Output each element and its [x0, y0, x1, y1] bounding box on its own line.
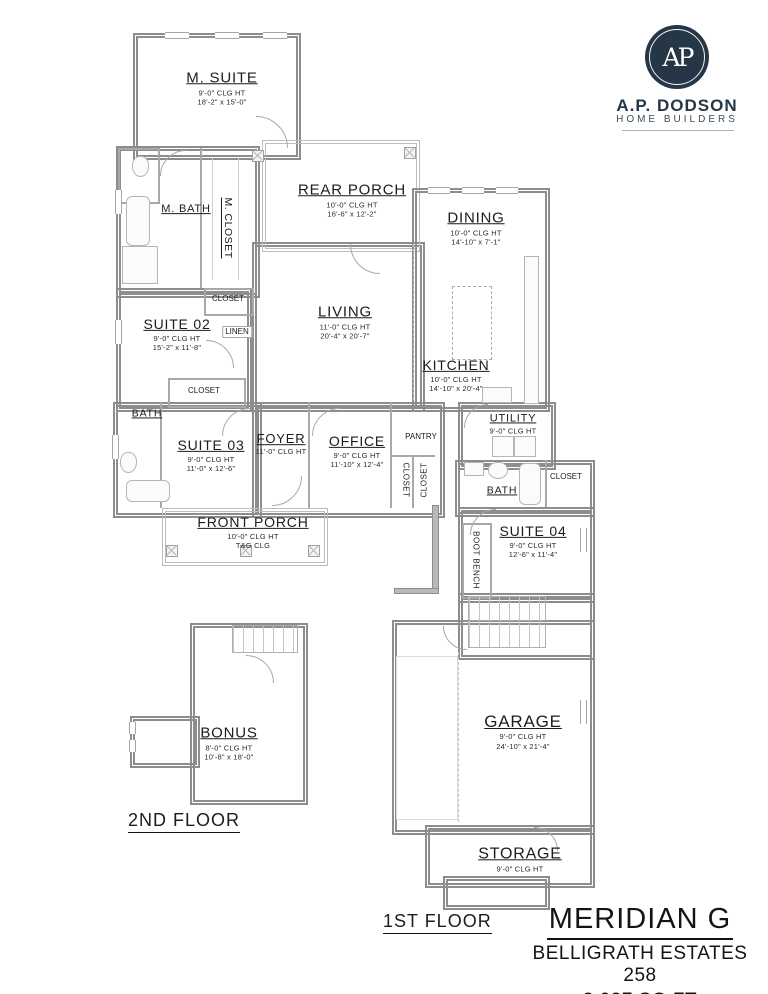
- room-name: STORAGE: [478, 844, 562, 864]
- room-name: SUITE 04: [499, 523, 566, 541]
- sink-symbol: [464, 462, 484, 476]
- wall-entry-side: [432, 505, 439, 594]
- porch-post: [166, 545, 178, 557]
- room-name: LINEN: [222, 326, 252, 338]
- wall-bath-closet04: [545, 460, 547, 507]
- title-block: MERIDIAN G BELLIGRATH ESTATES 258 3,037 …: [520, 903, 760, 994]
- brand-name: A.P. DODSON: [597, 96, 757, 116]
- kitchen-counter: [524, 256, 539, 404]
- brand-divider: [622, 130, 734, 131]
- porch-post: [308, 545, 320, 557]
- room-name: FOYER: [256, 431, 307, 447]
- room-name: GARAGE: [484, 711, 562, 732]
- room-name: KITCHEN: [422, 357, 489, 375]
- door-arc: [464, 404, 488, 428]
- room-label-kitchen: KITCHEN 10'-0" CLG HT 14'-10" x 20'-4": [422, 357, 489, 393]
- toilet-symbol: [132, 156, 149, 177]
- window: [580, 528, 587, 552]
- door-arc: [443, 626, 467, 650]
- door-arc: [222, 408, 250, 436]
- floor-plan-sheet: M. SUITE 9'-0" CLG HT 18'-2" x 15'-0" RE…: [0, 0, 768, 994]
- closet-rod: [238, 158, 239, 280]
- room-label-storage: STORAGE 9'-0" CLG HT: [478, 844, 562, 873]
- room-label-dining: DINING 10'-0" CLG HT 14'-10" x 7'-1": [447, 209, 504, 247]
- room-label-utility: UTILITY 9'-0" CLG HT: [490, 412, 537, 435]
- stairs: [468, 596, 546, 648]
- room-name: BATH: [132, 407, 162, 420]
- room-name: M. SUITE: [186, 69, 257, 88]
- room-label-foyer: FOYER 11'-0" CLG HT: [256, 431, 307, 457]
- room-name: BONUS: [200, 724, 257, 743]
- room-name: FRONT PORCH: [197, 514, 308, 532]
- community-name: BELLIGRATH ESTATES 258: [520, 943, 760, 987]
- door-arc: [256, 116, 288, 148]
- ceiling-break-line: [413, 244, 414, 400]
- room-label-office: OFFICE 9'-0" CLG HT 11'-10" x 12'-4": [329, 433, 385, 469]
- window: [215, 32, 239, 39]
- wall-foyer-office-div: [308, 402, 310, 508]
- window: [115, 190, 122, 214]
- kitchen-island: [452, 286, 492, 360]
- second-floor-label: 2ND FLOOR: [128, 810, 240, 833]
- room-name: CLOSET: [212, 294, 244, 304]
- room-name: DINING: [447, 209, 504, 228]
- bathtub-symbol: [519, 463, 541, 505]
- window: [580, 700, 587, 724]
- ap-dodson-logo-icon: AP: [645, 25, 709, 89]
- room-label-suite03: SUITE 03 9'-0" CLG HT 11'-0" x 12'-6": [177, 437, 244, 473]
- door-arc: [312, 408, 340, 436]
- room-name: CLOSET: [550, 472, 582, 482]
- room-label-linen: LINEN: [222, 326, 252, 338]
- door-arc: [272, 476, 302, 506]
- room-label-pantry: PANTRY: [405, 432, 437, 442]
- window: [496, 187, 518, 194]
- room-label-m-suite: M. SUITE 9'-0" CLG HT 18'-2" x 15'-0": [186, 69, 257, 107]
- room-label-closet-suite03: CLOSET: [188, 386, 220, 396]
- bathtub-symbol: [126, 196, 150, 246]
- toilet-symbol: [488, 462, 508, 479]
- brand-tagline: HOME BUILDERS: [597, 114, 757, 125]
- room-label-m-bath: M. BATH: [161, 203, 210, 217]
- room-name: UTILITY: [490, 412, 537, 426]
- room-name: SUITE 03: [177, 437, 244, 455]
- room-label-closet-foyer-a: CLOSET: [402, 462, 411, 497]
- room-name: REAR PORCH: [298, 181, 406, 200]
- room-name: SUITE 02: [143, 316, 210, 334]
- closet-rod: [212, 158, 213, 280]
- logo-monogram: AP: [645, 25, 709, 89]
- wall-entry-jog: [394, 588, 439, 594]
- room-label-closet-suite04: CLOSET: [550, 472, 582, 482]
- window: [112, 435, 119, 459]
- porch-post: [252, 150, 264, 162]
- washer-symbol: [492, 436, 514, 457]
- garage-bay-line: [458, 652, 459, 822]
- first-floor-label: 1ST FLOOR: [383, 911, 492, 934]
- room-label-garage: GARAGE 9'-0" CLG HT 24'-10" x 21'-4": [484, 711, 562, 751]
- room-name: M. BATH: [161, 203, 210, 217]
- bonus-stairs: [232, 625, 298, 653]
- window: [115, 320, 122, 344]
- room-label-m-closet: M. CLOSET: [222, 197, 234, 258]
- room-name: PANTRY: [405, 432, 437, 442]
- door-arc: [350, 244, 380, 274]
- porch-post: [404, 147, 416, 159]
- room-name: LIVING: [318, 303, 372, 322]
- room-label-front-porch: FRONT PORCH 10'-0" CLG HT T&G CLG: [197, 514, 308, 550]
- room-label-closet-foyer-b: CLOSET: [420, 462, 429, 497]
- shower-symbol: [122, 246, 158, 284]
- window: [428, 187, 450, 194]
- window: [165, 32, 189, 39]
- window: [129, 722, 136, 734]
- room-label-living: LIVING 11'-0" CLG HT 20'-4" x 20'-7": [318, 303, 372, 341]
- room-label-bonus: BONUS 8'-0" CLG HT 10'-8" x 18'-0": [200, 724, 257, 762]
- wall-mbath-mcloset: [200, 148, 202, 288]
- toilet-symbol: [120, 452, 137, 473]
- room-name: BATH: [487, 484, 517, 497]
- window: [129, 740, 136, 752]
- bathtub-symbol: [126, 480, 170, 502]
- door-arc: [160, 150, 186, 176]
- window: [462, 187, 484, 194]
- window: [263, 32, 287, 39]
- room-label-closet-hall: CLOSET: [212, 294, 244, 304]
- wall-bonus-bay: [130, 716, 200, 768]
- room-label-bath-main: BATH: [132, 407, 162, 420]
- door-arc: [246, 655, 274, 683]
- stairs-rail: [468, 620, 544, 621]
- plan-area: 3,037 SQ FT: [520, 990, 760, 994]
- room-name: OFFICE: [329, 433, 385, 451]
- room-label-suite04: SUITE 04 9'-0" CLG HT 12'-6" x 11'-4": [499, 523, 566, 559]
- room-name: CLOSET: [188, 386, 220, 396]
- room-label-rear-porch: REAR PORCH 10'-0" CLG HT 16'-6" x 12'-2": [298, 181, 406, 219]
- garage-side-bay: [396, 656, 458, 820]
- room-label-bath-hall: BATH: [487, 484, 517, 497]
- wall-closet-pair: [412, 455, 414, 508]
- room-label-boot-bench: BOOT BENCH: [472, 531, 481, 589]
- plan-name: MERIDIAN G: [547, 903, 733, 940]
- room-label-suite02: SUITE 02 9'-0" CLG HT 15'-2" x 11'-8": [143, 316, 210, 352]
- dryer-symbol: [514, 436, 536, 457]
